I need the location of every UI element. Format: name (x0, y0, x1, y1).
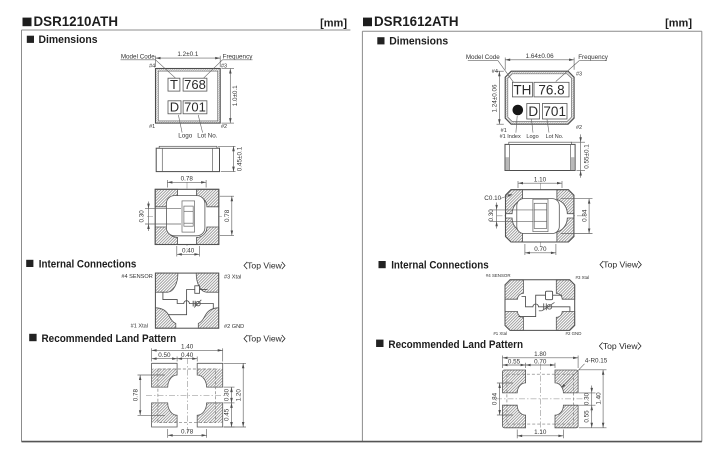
svg-text:#4: #4 (149, 64, 155, 70)
svg-text:Frequency: Frequency (578, 54, 609, 61)
svg-text:#1 Xtal: #1 Xtal (493, 331, 507, 336)
svg-text:701: 701 (184, 100, 206, 115)
svg-text:Internal Connections: Internal Connections (39, 258, 137, 270)
svg-text:Logo: Logo (178, 132, 193, 139)
svg-text:1.40: 1.40 (595, 392, 602, 405)
svg-text:0.55: 0.55 (584, 410, 591, 423)
svg-text:#4: #4 (492, 69, 498, 75)
svg-text:4-R0.15: 4-R0.15 (585, 358, 608, 365)
svg-text:1.40: 1.40 (181, 344, 194, 351)
svg-text:D: D (528, 104, 538, 119)
svg-text:0.40: 0.40 (181, 352, 194, 359)
svg-text:0.78: 0.78 (132, 388, 139, 401)
svg-text:0.30: 0.30 (224, 388, 231, 401)
svg-text:0.45: 0.45 (224, 408, 231, 421)
svg-text:#1 Xtal: #1 Xtal (131, 324, 148, 330)
svg-text:0.78: 0.78 (181, 428, 194, 435)
svg-text:0.45±0.1: 0.45±0.1 (237, 146, 244, 171)
svg-text:701: 701 (543, 104, 566, 119)
svg-text:1.24±0.06: 1.24±0.06 (491, 84, 498, 112)
svg-text:1.2±0.1: 1.2±0.1 (177, 51, 198, 58)
svg-text:Logo: Logo (526, 134, 538, 140)
svg-text:Top View: Top View (603, 260, 639, 270)
svg-text:DSR1210ATH: DSR1210ATH (34, 13, 119, 29)
svg-text:Dimensions: Dimensions (389, 36, 448, 48)
svg-text:C0.10: C0.10 (484, 195, 501, 202)
svg-text:#3: #3 (221, 64, 227, 70)
svg-text:0.70: 0.70 (534, 246, 547, 253)
svg-text:#2: #2 (576, 125, 582, 131)
svg-text:0.30: 0.30 (488, 209, 495, 222)
svg-text:TH: TH (513, 82, 531, 97)
svg-text:#2: #2 (221, 124, 227, 130)
svg-text:Internal Connections: Internal Connections (391, 260, 489, 272)
svg-text:Recommended Land Pattern: Recommended Land Pattern (388, 339, 523, 351)
svg-text:0.84: 0.84 (492, 392, 499, 405)
svg-text:D: D (170, 100, 179, 115)
svg-text:0.55±0.1: 0.55±0.1 (584, 144, 591, 169)
svg-text:1.64±0.06: 1.64±0.06 (526, 53, 554, 60)
svg-text:0.70: 0.70 (534, 358, 547, 365)
svg-text:0.84: 0.84 (581, 209, 588, 222)
svg-text:Top View: Top View (247, 261, 283, 271)
svg-text:T: T (170, 77, 178, 92)
svg-text:0.78: 0.78 (181, 176, 194, 183)
svg-text:Model Code: Model Code (466, 54, 500, 61)
svg-text:Top View: Top View (247, 334, 283, 344)
svg-text:1.20: 1.20 (235, 389, 242, 402)
svg-text:#3: #3 (576, 71, 582, 77)
svg-text:1.10: 1.10 (534, 176, 547, 183)
svg-text:#2 GND: #2 GND (566, 331, 582, 336)
svg-text:#1: #1 (149, 124, 155, 130)
svg-text:Frequency: Frequency (223, 53, 254, 60)
svg-text:1.10: 1.10 (534, 429, 547, 436)
svg-text:#1 Index: #1 Index (500, 134, 521, 140)
svg-text:Lot No.: Lot No. (197, 132, 218, 139)
svg-text:768: 768 (184, 77, 206, 92)
svg-text:Top View: Top View (603, 341, 639, 351)
svg-text:Recommended Land Pattern: Recommended Land Pattern (42, 333, 177, 345)
svg-text:Model Code: Model Code (121, 53, 155, 60)
svg-text:76.8: 76.8 (538, 82, 564, 97)
svg-text:#4 SENSOR: #4 SENSOR (486, 273, 511, 278)
svg-text:Dimensions: Dimensions (39, 34, 98, 46)
svg-text:[mm]: [mm] (320, 18, 347, 30)
svg-text:[mm]: [mm] (665, 18, 692, 30)
svg-text:0.30: 0.30 (584, 392, 591, 405)
svg-text:#3 Xtal: #3 Xtal (576, 275, 590, 280)
svg-text:DSR1612ATH: DSR1612ATH (374, 13, 459, 29)
svg-text:0.30: 0.30 (139, 210, 146, 223)
svg-text:0.55: 0.55 (508, 358, 521, 365)
svg-text:#2 GND: #2 GND (224, 324, 244, 330)
svg-text:1.80: 1.80 (534, 351, 547, 358)
svg-text:Lot No.: Lot No. (546, 134, 564, 140)
svg-text:0.50: 0.50 (158, 352, 171, 359)
svg-text:1.0±0.1: 1.0±0.1 (232, 85, 239, 106)
svg-text:0.40: 0.40 (182, 247, 195, 254)
svg-text:#3 Xtal: #3 Xtal (224, 274, 241, 280)
svg-text:#4 SENSOR: #4 SENSOR (121, 274, 152, 280)
svg-text:0.78: 0.78 (224, 209, 231, 222)
